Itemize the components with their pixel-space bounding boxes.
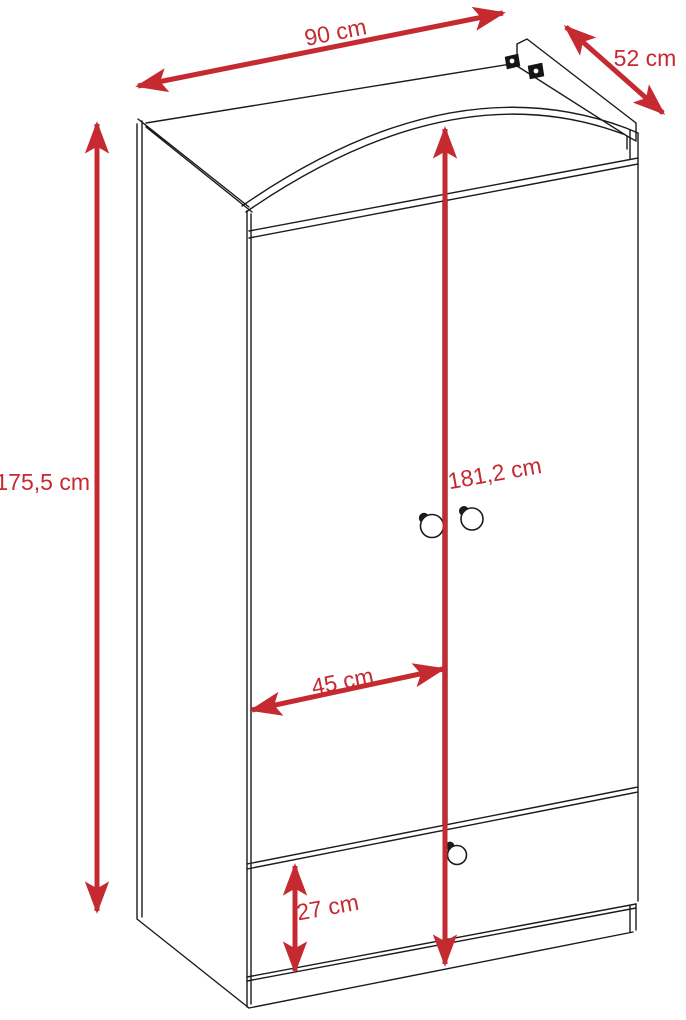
dimension-door-width: 45 cm	[252, 662, 443, 710]
cam-fitting-icon	[528, 63, 544, 79]
dimension-width: 90 cm	[138, 13, 503, 86]
dimension-annotations: 90 cm 52 cm 175,5 cm 181,2 cm 45 cm	[0, 13, 676, 971]
left-door-knob	[419, 513, 444, 538]
cam-fitting-icon	[505, 54, 520, 69]
width-label: 90 cm	[302, 13, 368, 50]
side-panel	[137, 119, 252, 1008]
crown-arch	[242, 107, 638, 212]
dimension-drawer-height: 27 cm	[295, 866, 361, 971]
drawer-height-label: 27 cm	[295, 889, 361, 925]
front-left-edge	[247, 211, 251, 1007]
wardrobe-outline	[137, 39, 638, 1008]
side-height-label: 175,5 cm	[0, 469, 90, 495]
furniture-dimension-diagram: 90 cm 52 cm 175,5 cm 181,2 cm 45 cm	[0, 0, 686, 1020]
dimension-side-height: 175,5 cm	[0, 124, 97, 911]
right-door-knob	[459, 506, 483, 530]
total-height-label: 181,2 cm	[446, 452, 544, 494]
dimension-total-height: 181,2 cm	[445, 129, 543, 964]
door-width-label: 45 cm	[309, 662, 375, 699]
wardrobe-diagram-canvas: 90 cm 52 cm 175,5 cm 181,2 cm 45 cm	[0, 0, 686, 1020]
drawer-knob	[446, 842, 467, 865]
dimension-depth: 52 cm	[566, 27, 676, 113]
depth-label: 52 cm	[614, 45, 677, 71]
